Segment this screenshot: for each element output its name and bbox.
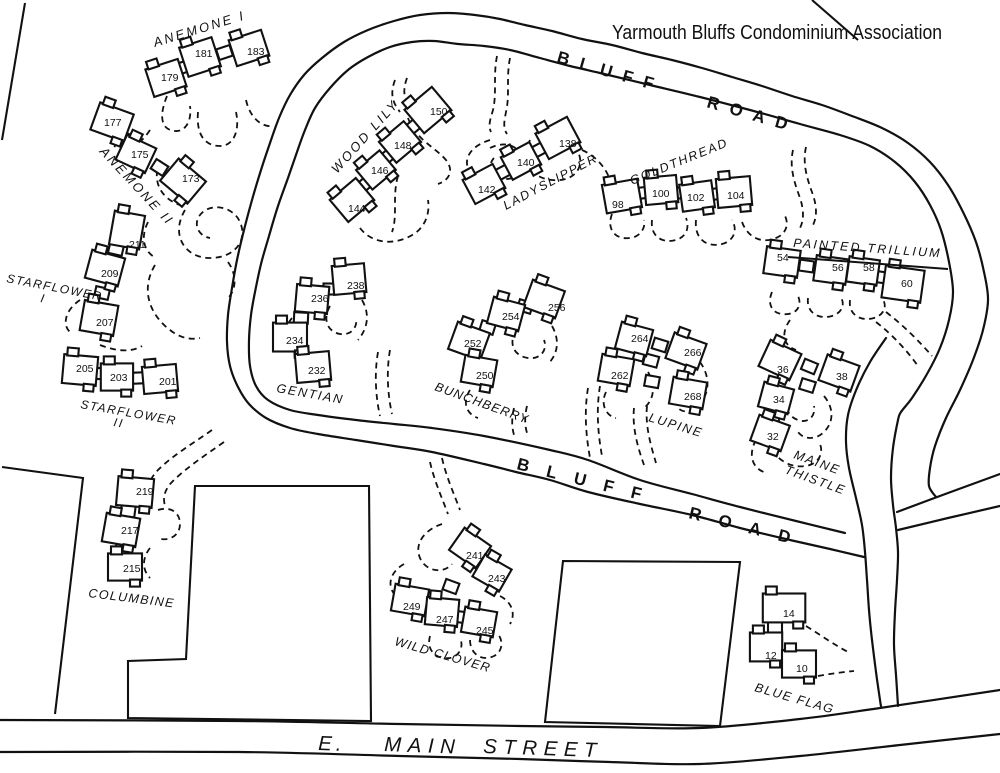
svg-text:179: 179 <box>161 72 179 84</box>
svg-text:232: 232 <box>308 365 326 377</box>
svg-text:140: 140 <box>517 157 535 169</box>
svg-text:144: 144 <box>348 203 366 215</box>
svg-text:104: 104 <box>727 190 745 202</box>
svg-text:207: 207 <box>96 317 114 329</box>
svg-text:14: 14 <box>783 608 795 620</box>
svg-text:56: 56 <box>832 262 844 274</box>
svg-text:245: 245 <box>476 625 494 637</box>
svg-text:177: 177 <box>104 117 122 129</box>
svg-text:243: 243 <box>488 573 506 585</box>
svg-text:E.: E. <box>318 732 346 756</box>
svg-text:234: 234 <box>286 335 304 347</box>
svg-text:STREET: STREET <box>483 735 604 762</box>
svg-text:215: 215 <box>123 563 141 575</box>
svg-text:217: 217 <box>121 525 139 537</box>
svg-text:181: 181 <box>195 48 213 60</box>
svg-text:60: 60 <box>901 278 913 290</box>
svg-text:142: 142 <box>478 184 496 196</box>
svg-text:238: 238 <box>347 280 365 292</box>
svg-text:241: 241 <box>466 550 484 562</box>
svg-text:266: 266 <box>684 347 702 359</box>
svg-text:98: 98 <box>612 199 624 211</box>
svg-text:38: 38 <box>836 371 848 383</box>
svg-text:256: 256 <box>548 302 566 314</box>
svg-text:102: 102 <box>687 192 705 204</box>
svg-text:148: 148 <box>394 140 412 152</box>
svg-text:173: 173 <box>182 173 200 185</box>
svg-text:209: 209 <box>101 268 119 280</box>
svg-text:254: 254 <box>502 311 520 323</box>
svg-text:146: 146 <box>371 165 389 177</box>
svg-text:32: 32 <box>767 431 779 443</box>
svg-text:12: 12 <box>765 650 777 662</box>
svg-text:100: 100 <box>652 188 670 200</box>
svg-text:250: 250 <box>476 370 494 382</box>
svg-text:262: 262 <box>611 370 629 382</box>
svg-text:150: 150 <box>430 106 448 118</box>
svg-text:10: 10 <box>796 663 808 675</box>
svg-text:249: 249 <box>403 601 421 613</box>
svg-text:264: 264 <box>631 333 649 345</box>
svg-text:36: 36 <box>777 364 789 376</box>
svg-text:54: 54 <box>777 252 789 264</box>
svg-text:268: 268 <box>684 391 702 403</box>
svg-text:236: 236 <box>311 293 329 305</box>
svg-text:219: 219 <box>136 486 154 498</box>
svg-text:252: 252 <box>464 338 482 350</box>
svg-text:MAIN: MAIN <box>384 733 462 759</box>
svg-text:203: 203 <box>110 372 128 384</box>
svg-text:247: 247 <box>436 614 454 626</box>
svg-text:183: 183 <box>247 46 265 58</box>
svg-text:201: 201 <box>159 376 177 388</box>
svg-text:211: 211 <box>129 239 146 251</box>
svg-text:205: 205 <box>76 363 94 375</box>
svg-text:Yarmouth Bluffs Condominium As: Yarmouth Bluffs Condominium Association <box>612 22 942 44</box>
svg-text:175: 175 <box>131 149 149 161</box>
svg-text:138: 138 <box>559 138 577 150</box>
svg-text:34: 34 <box>773 394 785 406</box>
